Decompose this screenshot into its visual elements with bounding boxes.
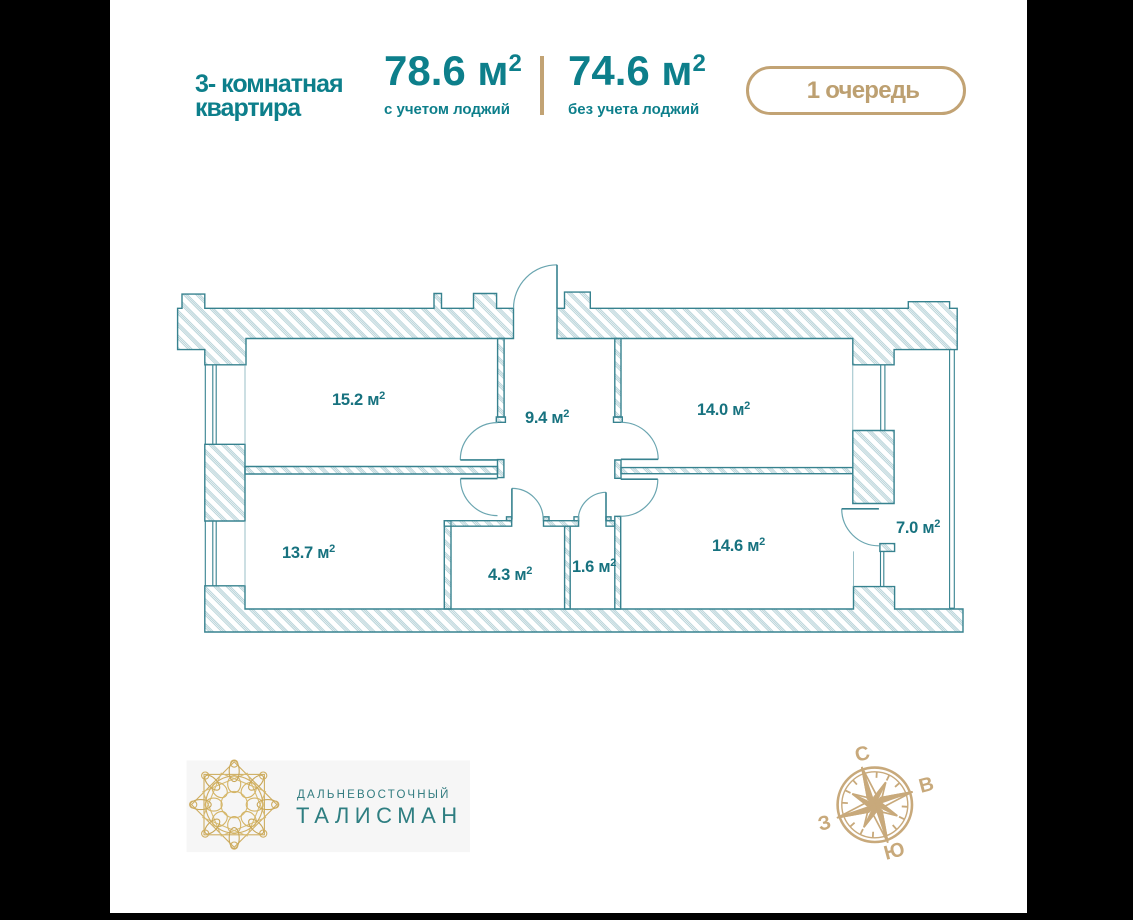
svg-text:ДАЛЬНЕВОСТОЧНЫЙ: ДАЛЬНЕВОСТОЧНЫЙ — [297, 788, 451, 801]
svg-text:14.6 м2: 14.6 м2 — [712, 536, 765, 555]
svg-text:1.6 м2: 1.6 м2 — [572, 557, 616, 576]
svg-text:14.0 м2: 14.0 м2 — [697, 400, 750, 419]
svg-text:7.0 м2: 7.0 м2 — [896, 518, 940, 537]
svg-text:З: З — [816, 811, 834, 835]
svg-text:13.7 м2: 13.7 м2 — [282, 543, 335, 562]
svg-text:В: В — [917, 773, 937, 798]
svg-text:ТАЛИСМАН: ТАЛИСМАН — [296, 803, 463, 828]
svg-text:С: С — [853, 742, 873, 767]
svg-text:9.4 м2: 9.4 м2 — [525, 408, 569, 427]
svg-text:15.2 м2: 15.2 м2 — [332, 390, 385, 409]
svg-text:Ю: Ю — [882, 838, 908, 865]
svg-text:4.3 м2: 4.3 м2 — [488, 565, 532, 584]
